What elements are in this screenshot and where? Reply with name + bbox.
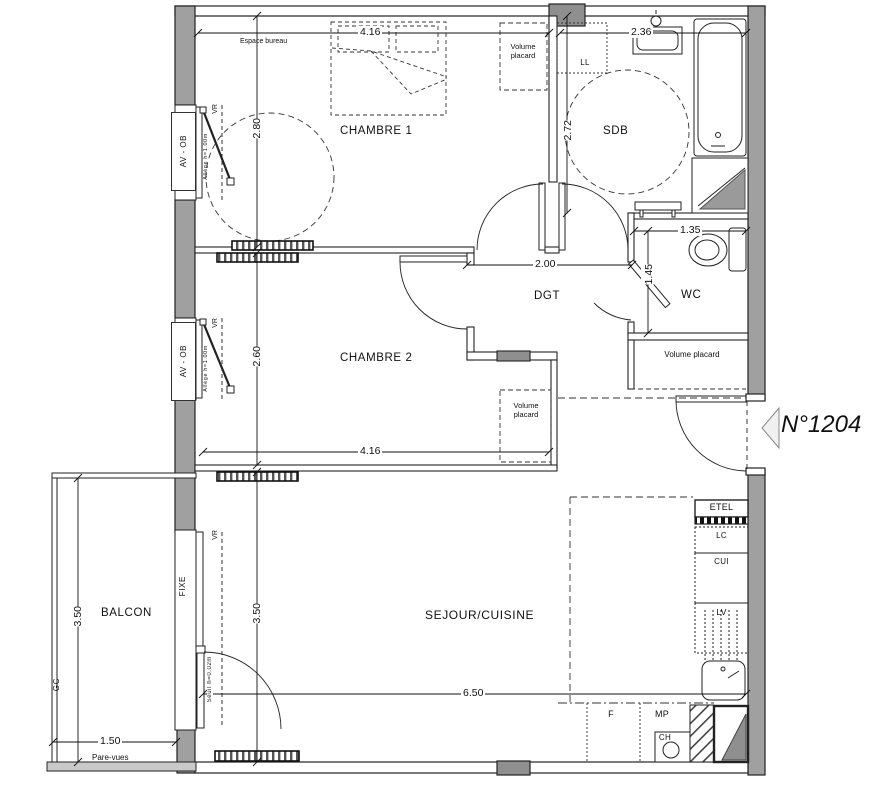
turning-circle-chambre1 (206, 113, 334, 241)
placard-label-entree: Volume placard (659, 350, 725, 360)
ll-tag: LL (570, 58, 600, 67)
f-tag: F (600, 709, 622, 719)
room-label-wc: WC (681, 289, 701, 301)
door-chambre1 (539, 183, 545, 250)
allege-note-2: Allège h=1.00m (203, 345, 209, 392)
window-tag-chambre1: AV - OB (171, 112, 196, 191)
dim-wc-depth: 1.45 (641, 264, 657, 284)
room-label-chambre2: CHAMBRE 2 (340, 352, 413, 364)
room-label-dgt: DGT (534, 290, 560, 302)
sdb-fixtures (633, 10, 748, 217)
room-label-sdb: SDB (603, 125, 628, 137)
technical-pocket (714, 706, 748, 762)
vr-tag-1: VR (212, 104, 219, 114)
balcony-door-arc (204, 652, 281, 729)
dim-chambre1-depth: 2.80 (249, 118, 265, 138)
seuil-note: Seuil h=0.02m (207, 656, 213, 702)
cui-tag: CUI (695, 557, 748, 566)
dim-wc-width: 1.35 (678, 224, 702, 236)
dim-sdb-depth: 2.72 (560, 120, 576, 140)
door-entry (676, 396, 746, 402)
duct-hatch (690, 705, 714, 762)
unit-number: N°1204 (781, 411, 861, 439)
radiator (217, 253, 298, 262)
dashed-annotations (206, 22, 746, 762)
vr-tag-3: VR (212, 530, 219, 540)
gc-tag: GC (52, 678, 61, 691)
toilet-tank (729, 228, 746, 271)
lc-tag: LC (695, 531, 748, 540)
allege-note-1: Allège h=1.00m (203, 133, 209, 180)
bed-symbol (331, 22, 447, 115)
balcony-door-leaf (197, 650, 204, 728)
placard-label-chambre2: Volume placard (502, 401, 550, 420)
etel-tag: ETEL (695, 502, 748, 512)
dim-chambre1-width: 4.16 (358, 26, 382, 38)
dim-balcon-depth: 3.50 (70, 606, 86, 626)
dim-sejour-depth: 3.50 (249, 603, 265, 623)
room-label-chambre1: CHAMBRE 1 (340, 125, 413, 137)
dim-dgt-width: 2.00 (533, 258, 557, 270)
vanity-symbol (692, 158, 748, 213)
ch-tag: CH (656, 733, 674, 742)
dim-chambre2-width: 4.16 (358, 445, 382, 457)
placard-label-chambre1: Volume placard (499, 42, 547, 61)
dim-balcon-width: 1.50 (98, 735, 122, 747)
room-label-sejour: SEJOUR/CUISINE (425, 608, 534, 622)
radiator (232, 241, 313, 250)
radiators (215, 241, 313, 761)
espace-bureau-label: Espace bureau (240, 38, 287, 45)
vr-tag-2: VR (212, 318, 219, 328)
pare-vues-screen (47, 762, 196, 771)
entry-arrow-icon (762, 408, 779, 448)
floorplan-page: CHAMBRE 1 SDB CHAMBRE 2 DGT WC SEJOUR/CU… (0, 0, 890, 800)
door-chambre2 (400, 256, 467, 262)
dim-chambre2-depth: 2.60 (249, 346, 265, 366)
window-tag-chambre2: AV - OB (171, 322, 196, 401)
pillar (497, 761, 530, 775)
pare-vues-label: Pare-vues (92, 753, 128, 762)
lv-tag: LV (695, 607, 748, 617)
room-label-balcon: BALCON (101, 607, 152, 619)
fixe-tag: FIXE (178, 576, 187, 596)
dim-sejour-width: 6.50 (461, 687, 485, 699)
dim-sdb-width: 2.36 (629, 26, 653, 38)
window-sejour-fixe (175, 530, 196, 730)
radiator (217, 472, 298, 481)
floorplan-drawing (0, 0, 890, 800)
pillar (497, 351, 530, 361)
mp-tag: MP (648, 709, 676, 719)
